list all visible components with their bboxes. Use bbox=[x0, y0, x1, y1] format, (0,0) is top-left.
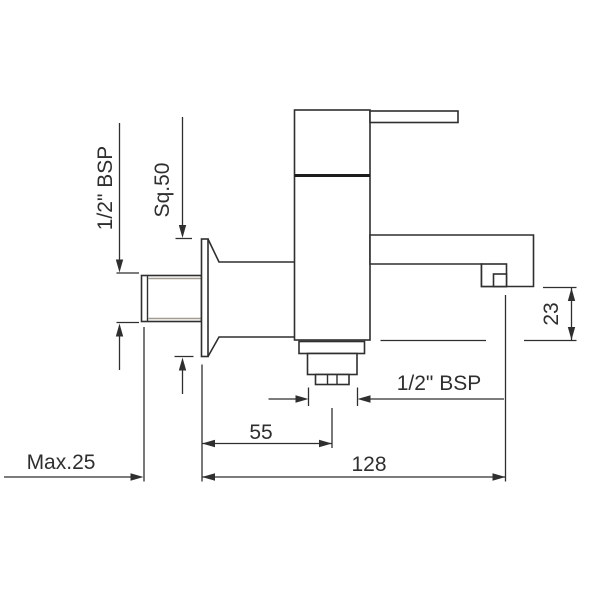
faucet-body bbox=[295, 110, 371, 340]
flange-cone-top bbox=[208, 239, 295, 262]
flange-square-label: Sq.50 bbox=[151, 163, 174, 218]
inlet-thread-label: 1/2" BSP bbox=[94, 146, 117, 231]
wall-flange-plate bbox=[202, 239, 209, 357]
arrowhead-up bbox=[116, 324, 123, 337]
arrowhead-left bbox=[202, 473, 215, 480]
lever-handle bbox=[370, 111, 458, 123]
technical-drawing-canvas: 1/2" BSP Sq.50 23 bbox=[0, 0, 600, 600]
arrowhead-down bbox=[116, 260, 123, 273]
arrowhead-up bbox=[179, 358, 186, 371]
arrowhead-left bbox=[358, 395, 371, 402]
dim-outlet-distance: 55 bbox=[202, 365, 332, 482]
dim-spout-height: 23 bbox=[381, 288, 577, 341]
outlet-distance-label: 55 bbox=[249, 421, 272, 444]
flange-cone-bottom bbox=[208, 337, 295, 357]
wall-thickness-label: Max.25 bbox=[27, 451, 96, 474]
arrowhead-right bbox=[131, 473, 144, 480]
arrowhead-right bbox=[296, 395, 309, 402]
arrowhead-down bbox=[179, 225, 186, 238]
arrowhead-up bbox=[568, 288, 575, 301]
arrowhead-right bbox=[493, 473, 506, 480]
spout-height-label: 23 bbox=[540, 302, 563, 325]
dim-inlet-thread: 1/2" BSP bbox=[94, 123, 139, 370]
bottom-outlet-nut bbox=[308, 354, 358, 375]
faucet-dimension-drawing: 1/2" BSP Sq.50 23 bbox=[0, 0, 600, 600]
arrowhead-down bbox=[568, 327, 575, 340]
inlet-pipe bbox=[142, 276, 202, 322]
spout bbox=[370, 235, 534, 287]
spout-reach-label: 128 bbox=[351, 453, 386, 476]
dim-flange-square: Sq.50 bbox=[151, 117, 194, 394]
dim-outlet-thread: 1/2" BSP bbox=[269, 372, 505, 406]
bottom-outlet-shoulder bbox=[299, 342, 365, 354]
dim-wall-thickness: Max.25 bbox=[4, 327, 144, 482]
bottom-outlet-tip bbox=[316, 375, 350, 385]
outlet-thread-label: 1/2" BSP bbox=[397, 372, 482, 395]
spout-outlet-aerator bbox=[494, 274, 507, 287]
arrowhead-right bbox=[319, 440, 332, 447]
arrowhead-left bbox=[202, 440, 215, 447]
faucet-outline bbox=[142, 110, 534, 385]
